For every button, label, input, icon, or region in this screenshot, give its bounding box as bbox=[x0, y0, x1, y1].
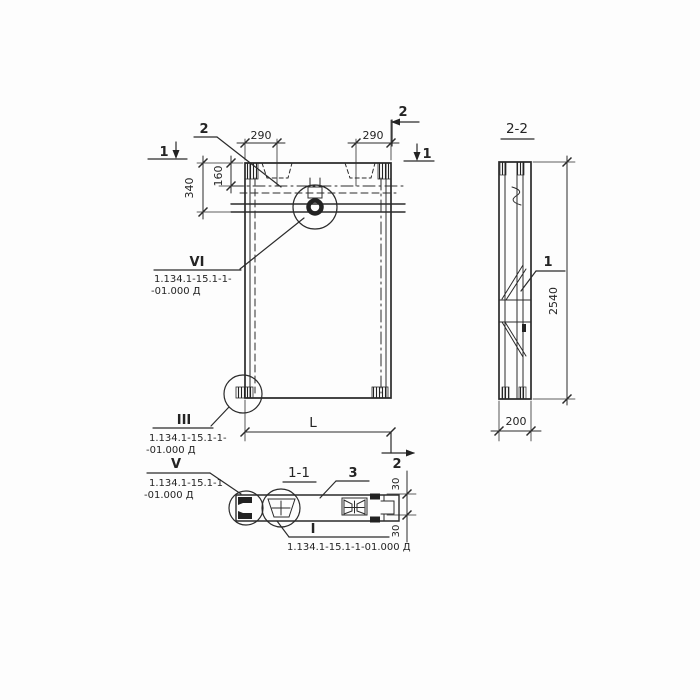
dim-L-group: L bbox=[241, 400, 396, 441]
label-1-text: 1 bbox=[543, 255, 552, 270]
callout-i-ref1: 1.134.1-15.1-1-01.000 Д bbox=[287, 542, 411, 553]
dim-290-left: 290 bbox=[251, 129, 272, 142]
part-label-3: 3 bbox=[320, 466, 369, 498]
section-marker-2-bottom: 2 bbox=[382, 432, 415, 472]
detail-circle-vi bbox=[293, 185, 337, 229]
bowtie-embed bbox=[342, 498, 367, 515]
section-2-2-view: 2-2 1 bbox=[491, 121, 575, 441]
dim-L: L bbox=[309, 415, 317, 431]
top-recesses bbox=[262, 163, 375, 178]
label-3-text: 3 bbox=[348, 466, 357, 481]
plate-bottom-left bbox=[236, 387, 253, 398]
marker-1-right-label: 1 bbox=[422, 147, 431, 162]
callout-v-numeral: V bbox=[171, 457, 181, 472]
dim-160: 160 bbox=[212, 166, 225, 187]
part-label-1: 1 bbox=[521, 255, 565, 291]
dim-2540: 2540 bbox=[547, 287, 560, 315]
front-elevation-view: 290 290 340 160 1 1 bbox=[146, 105, 434, 472]
callout-iii-ref1: 1.134.1-15.1-1- bbox=[149, 433, 227, 444]
callout-iii-ref2: -01.000 Д bbox=[146, 445, 196, 456]
dim-30-group: 30 30 bbox=[387, 471, 416, 542]
dim-290-right: 290 bbox=[363, 129, 384, 142]
section-1-1-title: 1-1 bbox=[288, 465, 310, 481]
blueprint-page: 290 290 340 160 1 1 bbox=[0, 0, 700, 700]
dim-30-top: 30 bbox=[391, 478, 402, 491]
callout-v: V 1.134.1-15.1-1 -01.000 Д bbox=[144, 457, 241, 501]
dim-200-group: 200 bbox=[491, 401, 541, 441]
section-1-1-view: 1-1 3 bbox=[144, 457, 416, 553]
callout-v-ref1: 1.134.1-15.1-1 bbox=[149, 478, 223, 489]
section-marker-1-left: 1 bbox=[148, 142, 187, 160]
callout-vi-numeral: VI bbox=[190, 255, 205, 270]
callout-iii-numeral: III bbox=[177, 413, 192, 428]
dim-340: 340 bbox=[183, 178, 196, 199]
callout-vi-ref2: -01.000 Д bbox=[151, 286, 201, 297]
callout-v-ref2: -01.000 Д bbox=[144, 490, 194, 501]
callout-vi-ref1: 1.134.1-15.1-1- bbox=[154, 274, 232, 285]
section-2-2-body bbox=[499, 162, 531, 399]
dim-2540-group: 2540 bbox=[533, 156, 575, 405]
marker-2-bottom-label: 2 bbox=[392, 457, 401, 472]
plate-bottom-right bbox=[372, 387, 388, 398]
panel-working-drawing: 290 290 340 160 1 1 bbox=[0, 0, 700, 700]
dim-200: 200 bbox=[506, 415, 527, 428]
marker-1-left-label: 1 bbox=[159, 145, 168, 160]
dim-290-group: 290 290 bbox=[237, 120, 399, 186]
dim-340-160-group: 340 160 bbox=[183, 156, 245, 219]
dim-30-bottom: 30 bbox=[391, 525, 402, 538]
label-2-text: 2 bbox=[199, 122, 208, 137]
callout-i-numeral: I bbox=[311, 522, 316, 537]
callout-vi: VI 1.134.1-15.1-1- -01.000 Д bbox=[151, 255, 241, 297]
marker-2-top-label: 2 bbox=[398, 105, 407, 120]
plate-top-right bbox=[378, 163, 391, 179]
section-marker-1-right: 1 bbox=[404, 144, 434, 162]
section-2-2-title: 2-2 bbox=[506, 121, 528, 137]
detail-circle-v bbox=[229, 491, 263, 525]
plate-top-left bbox=[245, 163, 258, 179]
fork-end bbox=[370, 494, 394, 523]
